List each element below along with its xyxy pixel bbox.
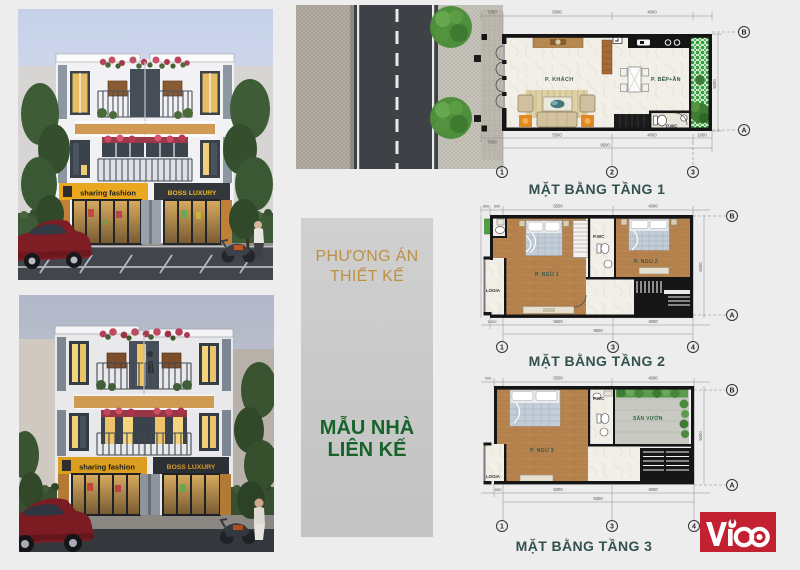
- svg-text:1: 1: [500, 524, 504, 531]
- svg-text:SÂN VƯỜN: SÂN VƯỜN: [633, 414, 663, 422]
- svg-text:sharing fashion: sharing fashion: [79, 463, 135, 472]
- svg-text:9300: 9300: [593, 496, 603, 501]
- svg-text:7000: 7000: [487, 140, 497, 145]
- svg-text:4000: 4000: [648, 487, 658, 492]
- svg-text:500: 500: [494, 205, 500, 209]
- svg-text:A: A: [729, 313, 734, 320]
- svg-text:P.WC: P.WC: [593, 234, 605, 239]
- svg-text:9500: 9500: [593, 328, 603, 333]
- svg-text:P. NGỦ 3: P. NGỦ 3: [530, 447, 554, 454]
- svg-text:LOGIA: LOGIA: [486, 288, 501, 293]
- svg-text:1: 1: [500, 345, 504, 352]
- svg-text:5500: 5500: [552, 10, 562, 15]
- svg-text:5000: 5000: [553, 487, 563, 492]
- svg-text:4000: 4000: [647, 10, 657, 15]
- svg-text:1000: 1000: [488, 319, 498, 324]
- svg-text:5500: 5500: [553, 376, 563, 381]
- svg-text:500: 500: [485, 377, 491, 381]
- svg-text:1000: 1000: [697, 133, 707, 138]
- svg-text:B: B: [729, 214, 734, 221]
- svg-text:MẶT BẰNG TẦNG 1: MẶT BẰNG TẦNG 1: [529, 180, 666, 197]
- svg-text:5500: 5500: [553, 204, 563, 209]
- svg-text:4: 4: [692, 524, 696, 531]
- svg-text:B: B: [741, 30, 746, 37]
- svg-text:A: A: [729, 483, 734, 490]
- svg-text:800: 800: [495, 487, 502, 492]
- svg-text:3: 3: [691, 170, 695, 177]
- svg-text:MẶT BẰNG TẦNG 3: MẶT BẰNG TẦNG 3: [516, 537, 653, 554]
- svg-text:7000: 7000: [487, 10, 497, 15]
- svg-text:P. KHÁCH: P. KHÁCH: [545, 76, 574, 83]
- svg-text:5000: 5000: [698, 262, 703, 272]
- svg-text:4000: 4000: [648, 204, 658, 209]
- svg-text:3: 3: [611, 345, 615, 352]
- svg-text:4000: 4000: [648, 376, 658, 381]
- svg-text:9500: 9500: [600, 143, 610, 148]
- svg-text:3: 3: [610, 524, 614, 531]
- svg-text:4000: 4000: [647, 133, 657, 138]
- svg-text:B: B: [729, 388, 734, 395]
- svg-text:5500: 5500: [553, 319, 563, 324]
- svg-text:4: 4: [691, 345, 695, 352]
- svg-text:A: A: [741, 128, 746, 135]
- svg-text:1: 1: [500, 170, 504, 177]
- svg-text:500: 500: [483, 205, 489, 209]
- svg-text:5000: 5000: [712, 79, 717, 89]
- svg-text:4000: 4000: [648, 319, 658, 324]
- svg-text:BOSS LUXURY: BOSS LUXURY: [167, 464, 216, 471]
- svg-text:MẶT BẰNG TẦNG 2: MẶT BẰNG TẦNG 2: [529, 352, 666, 369]
- svg-text:sharing fashion: sharing fashion: [80, 189, 136, 198]
- svg-text:BOSS LUXURY: BOSS LUXURY: [168, 190, 217, 197]
- svg-text:P. NGỦ 1: P. NGỦ 1: [535, 271, 559, 278]
- svg-text:2: 2: [610, 170, 614, 177]
- svg-text:LOGIA: LOGIA: [486, 474, 501, 479]
- svg-text:5000: 5000: [698, 431, 703, 441]
- svg-text:5500: 5500: [552, 133, 562, 138]
- svg-text:P. NGỦ 2: P. NGỦ 2: [634, 258, 658, 265]
- svg-text:P. BẾP+ĂN: P. BẾP+ĂN: [651, 76, 681, 83]
- svg-text:P.WC: P.WC: [593, 396, 605, 401]
